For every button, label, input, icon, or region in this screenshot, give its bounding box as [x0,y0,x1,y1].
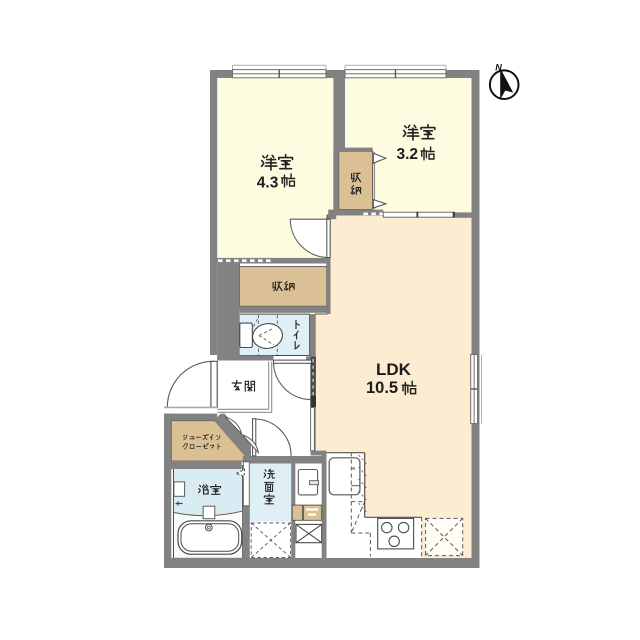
svg-text:10.5: 10.5 [366,379,398,397]
svg-text:4.3: 4.3 [257,174,279,191]
svg-text:3.2: 3.2 [397,146,419,163]
svg-text:LDK: LDK [376,360,412,379]
